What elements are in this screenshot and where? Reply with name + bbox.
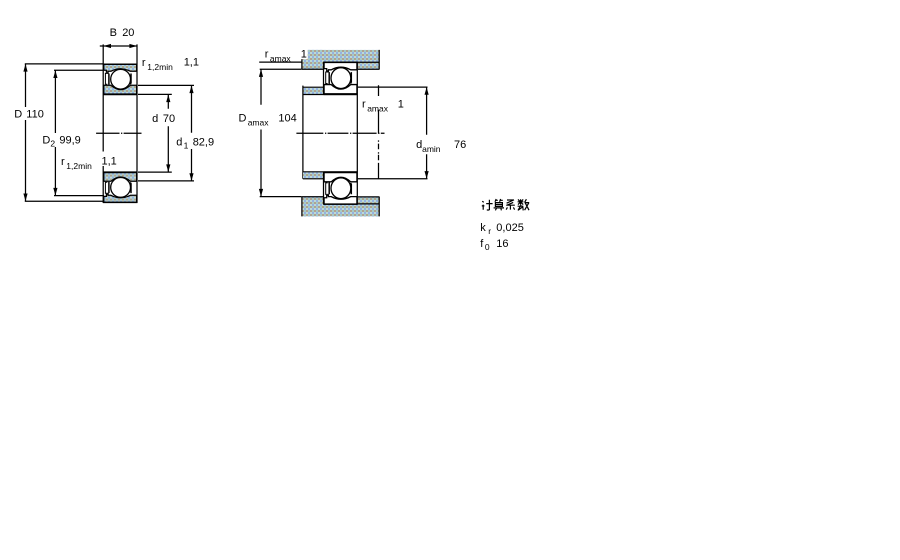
svg-text:99,9: 99,9 — [59, 135, 80, 147]
svg-text:amin: amin — [422, 144, 441, 154]
svg-text:1,2min: 1,2min — [147, 62, 173, 72]
svg-text:D: D — [14, 109, 22, 121]
svg-text:82,9: 82,9 — [193, 136, 214, 148]
svg-text:r: r — [362, 99, 366, 111]
svg-text:1: 1 — [301, 49, 307, 61]
svg-text:B: B — [110, 27, 117, 39]
svg-text:20: 20 — [122, 27, 134, 39]
svg-text:70: 70 — [163, 113, 175, 125]
svg-text:2: 2 — [50, 139, 55, 149]
svg-text:amax: amax — [367, 103, 389, 113]
svg-text:0: 0 — [485, 242, 490, 252]
svg-text:r: r — [488, 226, 491, 236]
svg-text:1,1: 1,1 — [102, 156, 117, 168]
svg-text:1: 1 — [184, 140, 189, 150]
svg-text:d: d — [176, 136, 182, 148]
svg-text:110: 110 — [26, 109, 44, 121]
svg-text:r: r — [142, 57, 146, 69]
svg-text:104: 104 — [278, 113, 296, 125]
svg-text:1,2min: 1,2min — [66, 161, 92, 171]
svg-text:D: D — [42, 135, 50, 147]
svg-text:0,025: 0,025 — [496, 222, 524, 234]
svg-text:76: 76 — [454, 139, 466, 151]
svg-text:D: D — [239, 113, 247, 125]
svg-text:r: r — [265, 49, 269, 61]
svg-text:k: k — [480, 222, 486, 234]
svg-text:16: 16 — [496, 238, 508, 250]
svg-text:d: d — [152, 113, 158, 125]
svg-text:1,1: 1,1 — [184, 57, 199, 69]
svg-text:1: 1 — [398, 99, 404, 111]
svg-text:amax: amax — [248, 117, 270, 127]
svg-text:r: r — [61, 156, 65, 168]
